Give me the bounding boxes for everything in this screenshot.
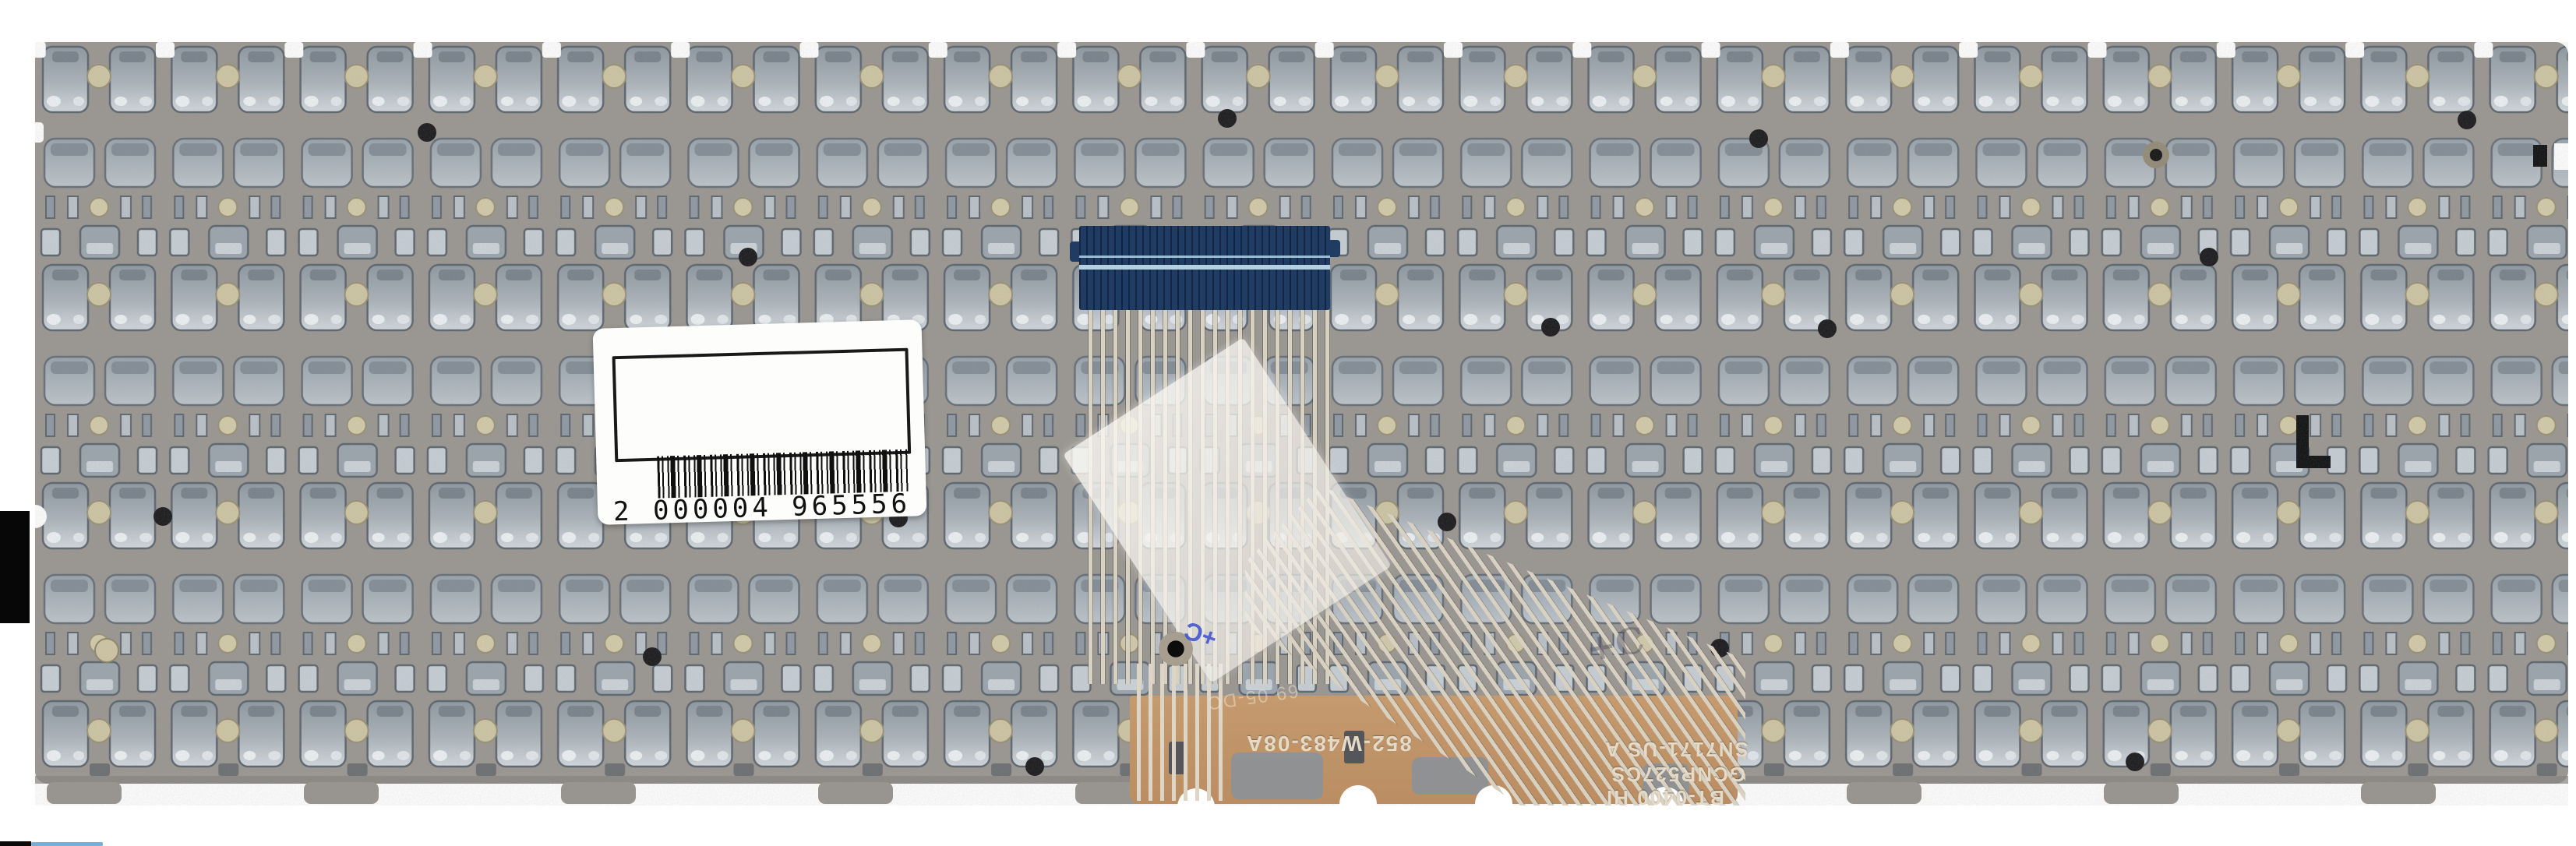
keyboard-backplate-photo: +C 852-W483-08A SN7171-US A GCNR527CS BT… [0,0,2576,846]
flex-notch [1339,785,1377,823]
flex-gray-blob [1231,753,1323,799]
flex-vendor-code: GCNR527CS [1610,762,1745,786]
stiffener-stripe [1079,256,1330,258]
stiffener-tab-right [1330,240,1340,257]
ribbon-traces-into-flex [1134,664,1229,801]
connector-stiffener [1079,226,1330,310]
bottom-edge-black-sliver [0,841,31,846]
stiffener-stripe [1079,265,1330,270]
flex-part-number: 852-W483-08A [1245,731,1412,756]
flex-model-code: SN7171-US A [1604,737,1749,761]
barcode-sticker: 2 000004 965556 [593,319,927,525]
stiffener-tab-left [1070,241,1079,262]
flex-batch-code: BT-0400 HI [1605,785,1724,809]
sticker-empty-field [612,348,912,463]
bottom-edge-blue-sliver [31,842,103,846]
left-black-tab [0,511,30,623]
